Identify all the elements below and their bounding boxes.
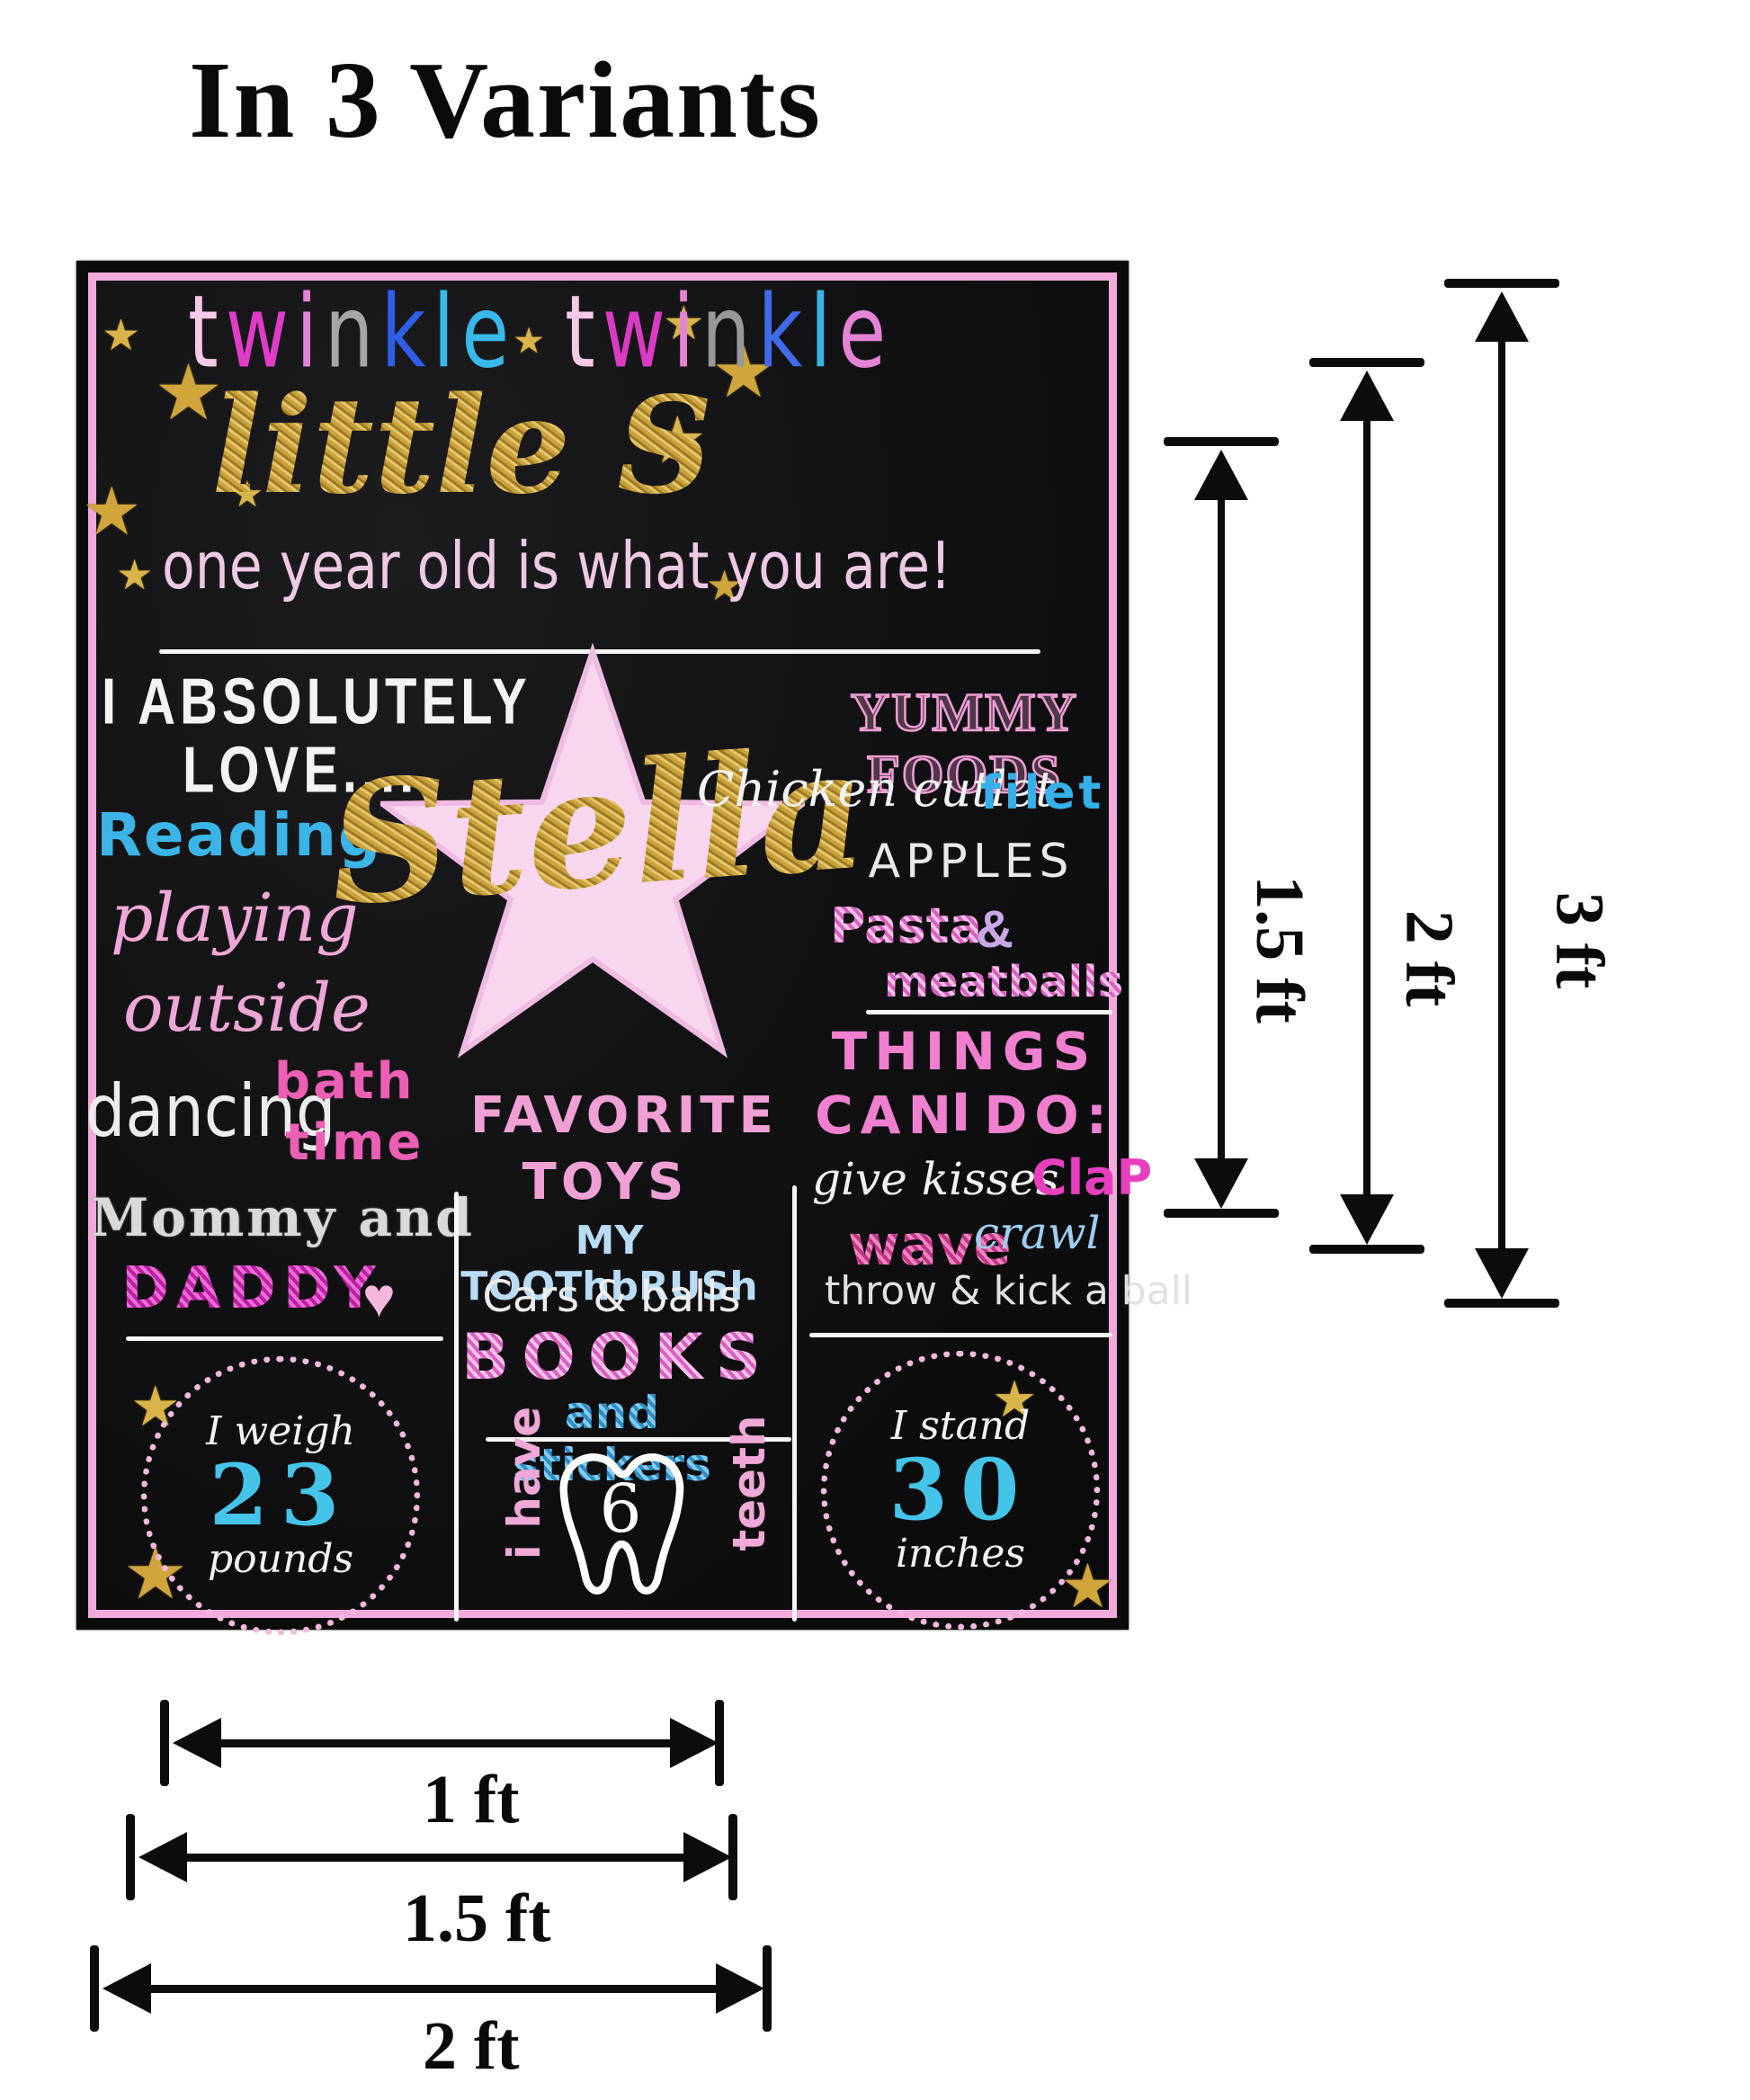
things-heading2: CAN DO: xyxy=(809,1085,1120,1146)
height-value: 30 xyxy=(889,1448,1032,1533)
twinkle-word-1: twinkle xyxy=(184,347,513,362)
skill-crawl: crawl xyxy=(974,1207,1101,1259)
star-icon: ★ xyxy=(102,315,140,358)
toy-books: BOOKS xyxy=(461,1320,763,1394)
width-arrow-1-5ft-label: 1.5 ft xyxy=(403,1880,551,1958)
food-chicken-cutlet: Chicken cutlet xyxy=(697,761,976,818)
sparkle-star-icon: ★ xyxy=(513,322,545,362)
height-arrow-1-5ft-label: 1.5 ft xyxy=(1240,875,1318,1023)
product-size-chart: In 3 Variants ★ ★ ★ ★ ★ ★ ★ ★ ★ ★ ★ ★ ★ … xyxy=(0,0,1750,2100)
favorite-toys-heading1: FAVORITE xyxy=(470,1086,740,1145)
weight-label-bottom: pounds xyxy=(208,1538,353,1581)
skill-throw-kick: throw & kick a ball xyxy=(825,1268,1192,1314)
star-icon: ★ xyxy=(82,478,141,545)
favorite-toys-heading2: TOYS xyxy=(470,1153,740,1211)
poster-title-little-star: little Star xyxy=(211,367,715,523)
weight-badge: I weigh 23 pounds xyxy=(141,1356,420,1635)
weight-value: 23 xyxy=(210,1453,353,1538)
love-item-mommy-and: Mommy and xyxy=(91,1187,475,1248)
teeth-count: 6 xyxy=(580,1470,661,1548)
skill-give-kisses: give kisses xyxy=(812,1153,1059,1205)
love-item-outside: outside xyxy=(123,970,371,1047)
food-apples: APPLES xyxy=(850,835,1093,889)
poster-subtitle: one year old is what you are! xyxy=(162,529,701,604)
teeth-label-right: teeth xyxy=(723,1393,775,1573)
height-label-bottom: inches xyxy=(896,1533,1025,1576)
star-icon: ★ xyxy=(116,554,153,595)
love-item-daddy: DADDY xyxy=(121,1256,383,1322)
left-divider xyxy=(126,1336,443,1341)
food-ampersand: & xyxy=(976,899,1013,960)
right-divider-bottom xyxy=(809,1333,1112,1337)
food-pasta: Pasta xyxy=(830,898,982,954)
food-filet: filet xyxy=(980,766,1104,820)
skill-clap: ClaP xyxy=(1031,1149,1152,1206)
toy-cars-balls: Cars & balls xyxy=(463,1272,760,1322)
right-divider-top xyxy=(866,1010,1112,1014)
twinkle-word-2: twinkle xyxy=(561,347,889,362)
width-arrow-1ft-label: 1 ft xyxy=(423,1761,520,1839)
poster-title-twinkle: twinkle★twinkle xyxy=(184,288,733,378)
child-name: Stella xyxy=(313,710,883,944)
food-meatballs: meatballs xyxy=(884,957,1123,1007)
love-item-playing: playing xyxy=(111,880,359,957)
chalkboard-poster: ★ ★ ★ ★ ★ ★ ★ ★ ★ ★ ★ ★ ★ twinkle★twinkl… xyxy=(76,261,1129,1630)
vertical-divider-left xyxy=(454,1192,459,1622)
vertical-divider-right xyxy=(792,1185,797,1622)
love-item-time: time xyxy=(285,1113,424,1172)
height-arrow-3ft-label: 3 ft xyxy=(1540,892,1618,989)
heart-icon: ♥ xyxy=(362,1266,396,1330)
height-arrow-2ft-label: 2 ft xyxy=(1389,910,1468,1007)
height-badge: I stand 30 inches xyxy=(821,1351,1100,1630)
width-arrow-2ft-label: 2 ft xyxy=(423,2007,520,2086)
page-title: In 3 Variants xyxy=(189,38,1088,164)
